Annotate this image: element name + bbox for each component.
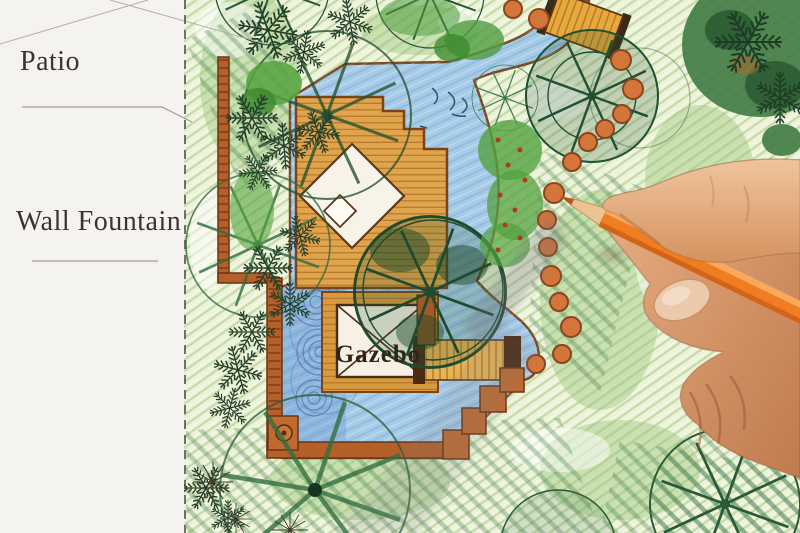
stepping-stone-icon — [550, 293, 568, 311]
paper-margin — [0, 0, 184, 533]
gazebo-label: Gazebo — [335, 341, 422, 368]
stepping-stone-icon — [623, 79, 643, 99]
wall-fountain-label: Wall Fountain — [16, 206, 181, 238]
stepping-stone-icon — [529, 9, 549, 29]
stepping-stone-icon — [553, 345, 571, 363]
stepping-stone-icon — [596, 120, 614, 138]
stepping-stone-icon — [613, 105, 631, 123]
plan-drawing: Gazebo — [0, 0, 800, 533]
stepping-stone-icon — [563, 153, 581, 171]
patio-label: Patio — [20, 46, 80, 78]
stepping-stone-icon — [504, 0, 522, 18]
stepping-stone-icon — [611, 50, 631, 70]
stepping-stone-icon — [544, 183, 564, 203]
stepping-stone-icon — [561, 317, 581, 337]
landscape-plan-photo: Gazebo Patio Wall Fountain — [0, 0, 800, 533]
stepping-stone-icon — [579, 133, 597, 151]
